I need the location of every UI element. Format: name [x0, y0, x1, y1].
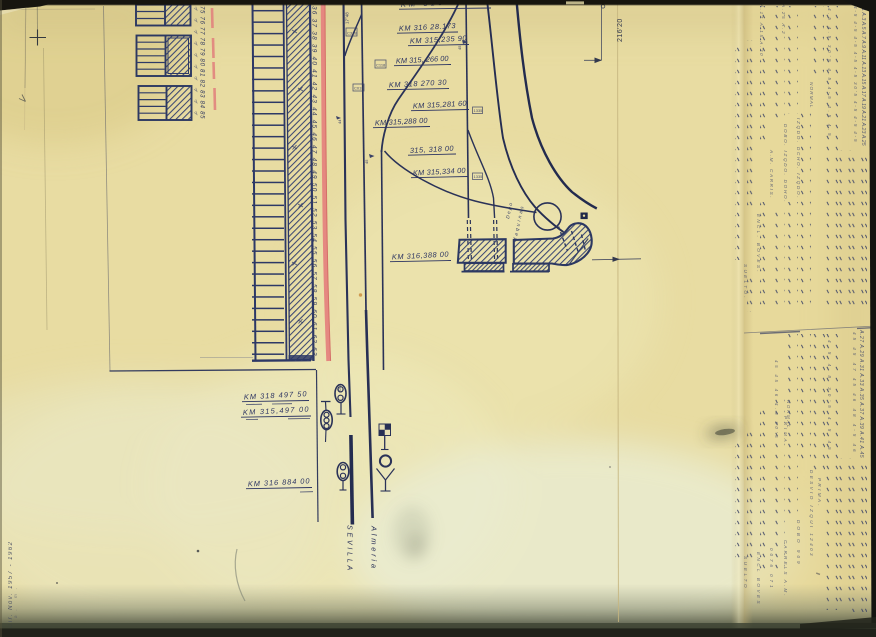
- svg-text:Dir. Nov. 1957 - 1962: Dir. Nov. 1957 - 1962: [8, 541, 14, 628]
- svg-text:CARRELS A.M.: CARRELS A.M.: [783, 540, 788, 596]
- svg-text:SUELTO.: SUELTO.: [743, 264, 748, 298]
- svg-text:DOBO. IZQDO. DOHO.: DOBO. IZQDO. DOHO.: [783, 124, 788, 202]
- svg-text:1335: 1335: [474, 174, 484, 179]
- svg-text:216′20: 216′20: [617, 18, 624, 42]
- svg-text:A.27 A.29 A.31 A.33 A.35 A.37: A.27 A.29 A.31 A.33 A.35 A.37 A.39 A.41 …: [858, 329, 864, 458]
- svg-text:KM 315,235 90: KM 315,235 90: [410, 33, 468, 45]
- svg-text:KM 316 28.173: KM 316 28.173: [399, 21, 457, 33]
- svg-text:17°48: 17°48: [345, 12, 350, 24]
- svg-text:C118: C118: [376, 63, 386, 68]
- svg-text:C318: C318: [347, 31, 357, 36]
- svg-text:1335: 1335: [474, 108, 484, 113]
- svg-text:KM 315,288 00: KM 315,288 00: [375, 116, 429, 128]
- svg-text:A.M. CARRIS.: A.M. CARRIS.: [769, 149, 774, 198]
- svg-text:DOBO 909: DOBO 909: [796, 520, 801, 564]
- svg-text:KM 318 270 30: KM 318 270 30: [389, 77, 448, 89]
- svg-text:75 76 77 78 79 80 81 82 83 84: 75 76 77 78 79 80 81 82 83 84 85: [199, 6, 205, 120]
- svg-text:45: 45: [457, 45, 462, 50]
- svg-text:36 37 38 39 40 41 42 43 44 45: 36 37 38 39 40 41 42 43 44 45 46 47 48 4…: [311, 6, 318, 356]
- svg-text:KM 315,281 60: KM 315,281 60: [413, 99, 468, 111]
- svg-text:4-5 4-5 4-5 4-5 4-5 30'5 4-5 4: 4-5 4-5 4-5 4-5 4-5 30'5 4-5 4-5 4-5: [853, 6, 858, 142]
- svg-text:44: 44: [337, 119, 342, 124]
- svg-text:A.1 A.3 A.5 A.7 A.9 A.11 A.13: A.1 A.3 A.5 A.7 A.9 A.11 A.13 A.15 A.17 …: [860, 2, 866, 146]
- svg-text:C018: C018: [354, 86, 364, 91]
- svg-text:45: 45: [364, 159, 369, 164]
- svg-text:NORMAL: NORMAL: [809, 82, 814, 108]
- svg-text:A.17 A.15 A.20: A.17 A.15 A.20: [759, 3, 764, 56]
- svg-text:ENCL BOVES: ENCL BOVES: [756, 552, 761, 605]
- svg-text:45 45 46 4.8 30'5: 45 45 46 4.8 30'5: [774, 360, 779, 438]
- svg-text:IZQDO. DCHO. IZQDO.: IZQDO. DCHO. IZQDO.: [796, 118, 801, 198]
- svg-text:315, 318 00: 315, 318 00: [410, 144, 455, 155]
- svg-text:KM 315, 266 00: KM 315, 266 00: [396, 54, 450, 66]
- svg-text:SEVILLA: SEVILLA: [346, 525, 353, 572]
